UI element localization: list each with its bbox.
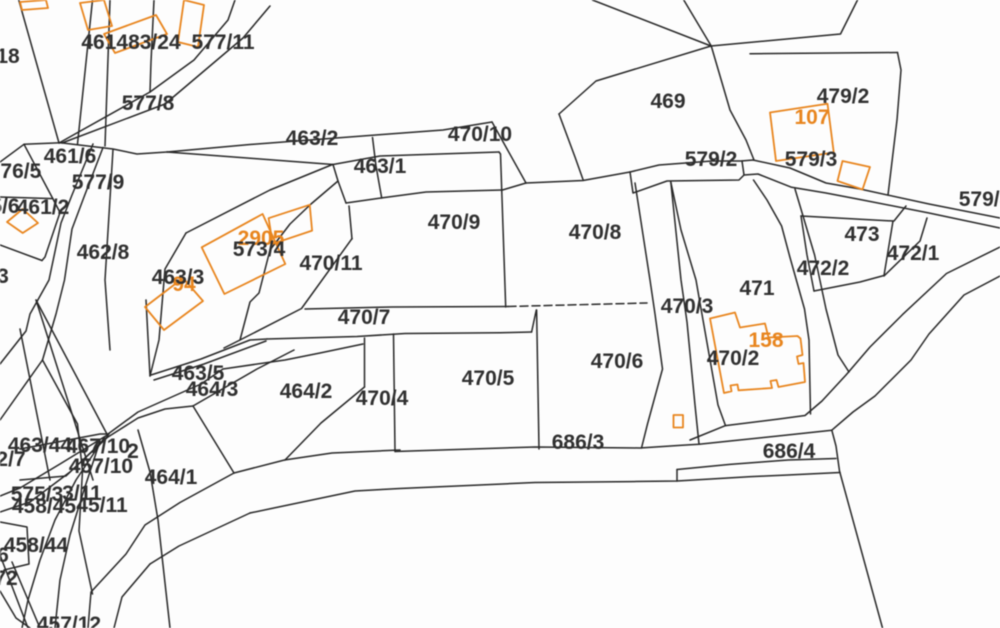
svg-text:464/3: 464/3	[186, 378, 239, 401]
svg-text:577/9: 577/9	[72, 171, 125, 194]
svg-text:464/1: 464/1	[145, 466, 198, 489]
svg-text:461483/24: 461483/24	[81, 31, 181, 54]
svg-text:479/2: 479/2	[817, 85, 870, 108]
svg-text:686/3: 686/3	[552, 431, 605, 454]
svg-text:469: 469	[650, 90, 685, 113]
svg-text:463/3: 463/3	[152, 266, 205, 289]
svg-text:577/11: 577/11	[191, 31, 254, 54]
svg-text:471: 471	[739, 277, 774, 300]
svg-text:464/2: 464/2	[280, 380, 333, 403]
svg-text:45/11: 45/11	[76, 494, 128, 517]
svg-text:470/8: 470/8	[569, 221, 622, 244]
svg-text:470/2: 470/2	[707, 347, 760, 370]
svg-text:2/7: 2/7	[0, 448, 26, 471]
svg-text:473: 473	[844, 223, 879, 246]
svg-text:461/2: 461/2	[17, 196, 70, 219]
svg-text:470/9: 470/9	[428, 211, 481, 234]
svg-text:470/4: 470/4	[356, 387, 409, 410]
svg-text:72: 72	[0, 567, 18, 590]
svg-text:579/2: 579/2	[685, 148, 738, 171]
svg-text:686/4: 686/4	[763, 440, 816, 463]
svg-text:470/10: 470/10	[448, 123, 512, 146]
svg-text:3: 3	[0, 265, 9, 288]
svg-text:457/10: 457/10	[69, 455, 133, 478]
svg-text:461/6: 461/6	[44, 145, 97, 168]
svg-text:457/12: 457/12	[37, 613, 101, 628]
svg-text:573/4: 573/4	[233, 238, 286, 261]
svg-text:470/6: 470/6	[591, 350, 644, 373]
svg-text:470/5: 470/5	[462, 367, 515, 390]
svg-text:470/7: 470/7	[338, 306, 391, 329]
svg-text:472/2: 472/2	[797, 257, 850, 280]
svg-text:463/2: 463/2	[286, 127, 339, 150]
svg-text:470/3: 470/3	[661, 295, 714, 318]
svg-text:462/8: 462/8	[77, 241, 130, 264]
svg-text:18: 18	[0, 45, 20, 68]
svg-text:472/1: 472/1	[887, 242, 940, 265]
svg-text:579/3: 579/3	[785, 148, 838, 171]
svg-text:458/44: 458/44	[4, 534, 69, 557]
svg-text:579/4: 579/4	[959, 188, 1000, 211]
svg-text:458/45: 458/45	[12, 495, 77, 518]
svg-text:470/11: 470/11	[299, 252, 362, 275]
svg-text:463/1: 463/1	[354, 155, 407, 178]
svg-text:107: 107	[794, 106, 829, 129]
svg-text:576/5: 576/5	[0, 160, 42, 183]
svg-text:577/8: 577/8	[122, 92, 175, 115]
svg-text:6: 6	[0, 544, 9, 567]
